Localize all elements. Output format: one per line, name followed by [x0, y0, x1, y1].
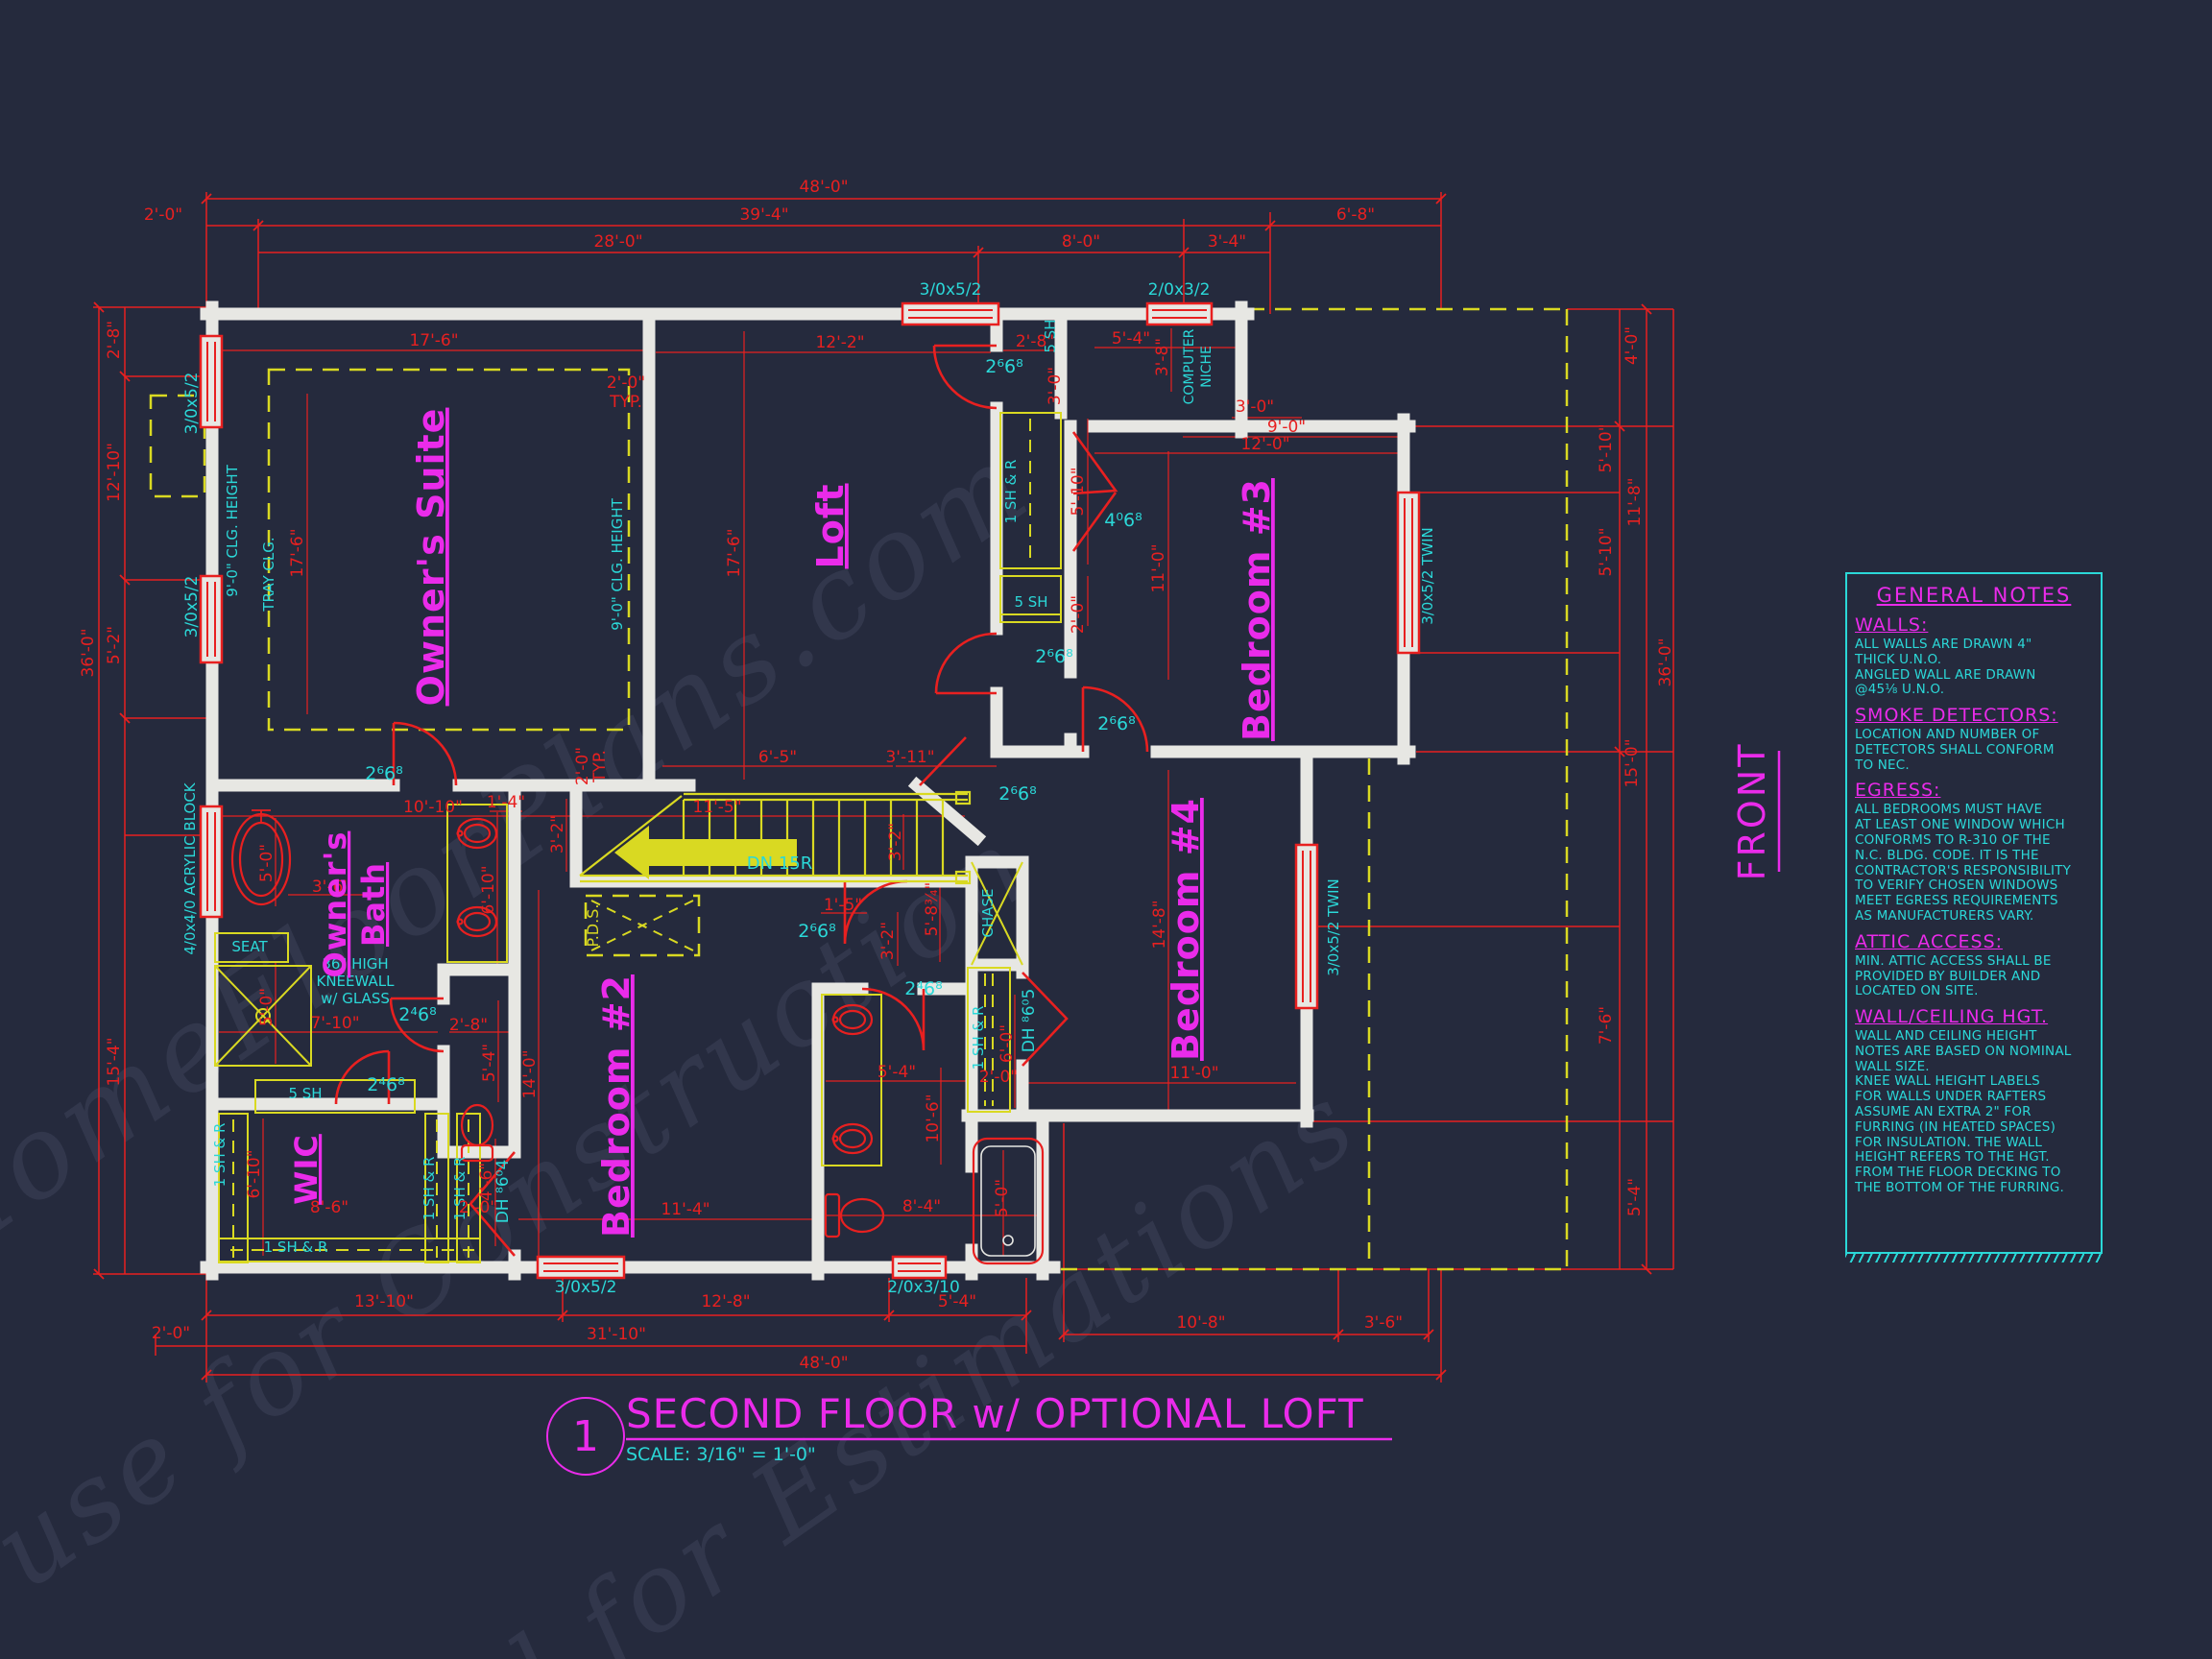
- annotation-label: 2'-0": [573, 747, 592, 785]
- annotation-label: 1 SH & R: [970, 1006, 987, 1070]
- annotation-label: w/ GLASS: [321, 990, 390, 1007]
- annotation-label: 1 SH & R: [211, 1123, 228, 1188]
- annotation-label: 2⁶6⁸: [798, 921, 835, 942]
- annotation-label: 3'-2": [878, 922, 898, 960]
- annotation-label: DN 15R: [747, 854, 812, 874]
- annotation-label: 3/0x5/2 TWIN: [1419, 527, 1436, 625]
- annotation-label: 5'-0": [257, 988, 276, 1026]
- door-loft-lower: [936, 634, 997, 693]
- annotation-label: 3/0x5/2: [182, 373, 202, 435]
- annotation-label: 2'-0": [979, 1068, 1018, 1087]
- annotation-label: 9'-0" CLG. HEIGHT: [609, 497, 626, 630]
- notes-section-wall-ceiling-hgt: WALL/CEILING HGT. WALL AND CEILING HEIGH…: [1855, 1006, 2093, 1196]
- cad-floorplan-sheet: { "title_block": { "number": "1", "title…: [0, 0, 2212, 1659]
- annotation-label: P.D.S.: [584, 904, 602, 948]
- annotation-label: 17'-6": [288, 528, 307, 577]
- annotation-label: 2⁴6⁸: [367, 1074, 404, 1095]
- annotation-label: 6'-0": [998, 1024, 1017, 1063]
- room-label: Owner's: [317, 831, 353, 978]
- annotation-label: COMPUTER: [1182, 328, 1197, 404]
- annotation-label: 3'-2": [886, 823, 905, 861]
- annotation-label: 5'-4": [878, 1063, 916, 1082]
- window-3052-top: [902, 303, 998, 325]
- room-label: Bath: [355, 862, 392, 947]
- notes-body: WALL AND CEILING HEIGHT NOTES ARE BASED …: [1855, 1029, 2093, 1196]
- notes-body: LOCATION AND NUMBER OF DETECTORS SHALL C…: [1855, 728, 2093, 773]
- annotation-label: 6'-5": [758, 748, 797, 767]
- notes-heading: EGRESS:: [1855, 780, 2093, 801]
- annotation-label: DH ⁸6⁰4: [493, 1160, 513, 1224]
- annotation-label: 3'-6": [1364, 1313, 1403, 1333]
- front-label-group: FRONT: [1731, 742, 1779, 881]
- notes-body: ALL BEDROOMS MUST HAVE AT LEAST ONE WIND…: [1855, 803, 2093, 924]
- annotation-label: SEAT: [231, 938, 268, 955]
- annotation-label: 10'-8": [1176, 1313, 1225, 1333]
- annotation-label: 5'-0": [993, 1179, 1012, 1217]
- annotation-label: 11'-0": [1169, 1064, 1218, 1083]
- room-label: Owner's Suite: [410, 408, 452, 707]
- annotation-label: 2⁶6⁸: [998, 783, 1036, 805]
- annotation-label: 8'-4": [902, 1197, 941, 1216]
- annotation-label: 5 SH: [288, 1085, 322, 1102]
- notes-body: MIN. ATTIC ACCESS SHALL BE PROVIDED BY B…: [1855, 954, 2093, 999]
- general-notes-panel: GENERAL NOTES WALLS: ALL WALLS ARE DRAWN…: [1845, 572, 2103, 1254]
- room-label: Bedroom #4: [1165, 798, 1207, 1061]
- window-20310-bottom: [893, 1257, 946, 1278]
- annotation-label: 39'-4": [739, 205, 788, 225]
- annotation-label: 2'-0": [1069, 595, 1088, 634]
- annotation-label: 11'-0": [1149, 543, 1168, 592]
- window-3052-twin-bed3: [1398, 493, 1419, 653]
- window-2032-top: [1147, 303, 1212, 325]
- annotation-label: 5'-10": [1597, 423, 1616, 472]
- notes-heading: WALLS:: [1855, 614, 2093, 636]
- annotation-label: 6'-10": [479, 865, 498, 914]
- annotation-label: 15'-0": [1623, 738, 1642, 787]
- annotation-label: 2⁴6⁸: [398, 1004, 436, 1025]
- room-label: Bedroom #3: [1236, 478, 1278, 741]
- annotation-label: 3'-11": [885, 748, 934, 767]
- annotation-label: 1 SH & R: [421, 1157, 438, 1221]
- annotation-label: 2'-0": [459, 1198, 497, 1217]
- notes-heading: ATTIC ACCESS:: [1855, 931, 2093, 952]
- annotation-label: 4⁰6⁸: [1104, 510, 1142, 531]
- annotation-label: 8'-0": [1062, 232, 1100, 252]
- drawing-title: SECOND FLOOR w/ OPTIONAL LOFT: [626, 1390, 1364, 1437]
- notes-heading: WALL/CEILING HGT.: [1855, 1006, 2093, 1027]
- annotation-label: 7'-6": [1597, 1006, 1616, 1045]
- notes-section-walls: WALLS: ALL WALLS ARE DRAWN 4" THICK U.N.…: [1855, 614, 2093, 698]
- annotation-label: 1 SH & R: [1002, 460, 1020, 524]
- annotation-label: 2'-8": [449, 1016, 488, 1035]
- annotation-label: 5'-0": [257, 844, 276, 882]
- annotation-label: 2⁴6⁸: [904, 978, 942, 999]
- annotation-label: 1'-4": [487, 793, 525, 812]
- notes-heading: SMOKE DETECTORS:: [1855, 705, 2093, 726]
- annotation-label: TYP.: [590, 750, 610, 783]
- annotation-label: 2/0x3/10: [887, 1278, 960, 1297]
- notes-title: GENERAL NOTES: [1855, 584, 2093, 607]
- annotation-label: 2⁶6⁸: [365, 763, 402, 784]
- annotation-label: 3'-0": [1046, 367, 1065, 405]
- annotation-label: TYP.: [609, 393, 642, 412]
- room-label: WIC: [288, 1134, 325, 1205]
- annotation-label: 9'-0": [1267, 418, 1306, 437]
- annotation-label: 11'-8": [1625, 477, 1645, 526]
- annotation-label: 10'-6": [924, 1094, 943, 1142]
- drawing-scale: SCALE: 3/16" = 1'-0": [626, 1444, 816, 1465]
- annotation-label: 2/0x3/2: [1148, 280, 1211, 300]
- annotation-label: 12'-2": [815, 333, 864, 352]
- annotation-label: 12'-8": [701, 1292, 750, 1311]
- annotation-label: 48'-0": [799, 1354, 848, 1373]
- front-label: FRONT: [1731, 742, 1773, 881]
- door-owners-suite: [394, 723, 456, 785]
- annotation-label: 5 SH: [1014, 593, 1047, 611]
- window-acrylic-block-left: [201, 806, 222, 917]
- annotation-label: 14'-0": [520, 1049, 540, 1098]
- annotation-label: TRAY CLG.: [260, 537, 277, 612]
- annotation-label: 17'-6": [725, 528, 744, 577]
- window-3052-left-2: [201, 576, 222, 662]
- annotation-label: 28'-0": [593, 232, 642, 252]
- annotation-label: 48'-0": [799, 178, 848, 197]
- annotation-label: 3'-8": [1153, 338, 1172, 376]
- annotation-label: 5'-10": [1069, 467, 1088, 516]
- annotation-label: 1 SH & R: [264, 1238, 328, 1256]
- annotation-label: 5'-10": [1597, 527, 1616, 576]
- notes-section-egress: EGRESS: ALL BEDROOMS MUST HAVE AT LEAST …: [1855, 780, 2093, 924]
- annotation-label: 12'-10": [105, 443, 124, 502]
- annotation-label: 13'-10": [354, 1292, 414, 1311]
- annotation-label: 2'-0": [607, 373, 645, 393]
- annotation-label: 5'-4": [1112, 329, 1150, 349]
- annotation-label: 5'-4": [1625, 1178, 1645, 1216]
- annotation-label: 10'-10": [403, 798, 463, 817]
- window-3052-twin-bed4: [1296, 845, 1317, 1008]
- room-label: Loft: [809, 483, 852, 568]
- annotation-label: 6'-10": [245, 1149, 264, 1198]
- annotation-label: 15'-4": [105, 1037, 124, 1086]
- annotation-label: 1'-5": [824, 896, 862, 915]
- window-3052-bottom: [538, 1257, 624, 1278]
- annotation-label: 2⁶6⁸: [1097, 713, 1135, 734]
- annotation-label: 2⁶6⁸: [1035, 646, 1072, 667]
- annotation-label: 5'-8¾": [923, 882, 942, 937]
- sink: [833, 1124, 873, 1153]
- annotation-label: 3'-2": [548, 815, 567, 854]
- annotation-label: 5 SH: [1042, 319, 1059, 352]
- pds-box: [586, 896, 699, 955]
- notes-section-attic-access: ATTIC ACCESS: MIN. ATTIC ACCESS SHALL BE…: [1855, 931, 2093, 999]
- room-label: Bedroom #2: [595, 974, 637, 1238]
- notes-body: ALL WALLS ARE DRAWN 4" THICK U.N.O. ANGL…: [1855, 637, 2093, 698]
- annotation-label: 3'-4": [1208, 232, 1246, 252]
- annotation-label: 31'-10": [587, 1325, 646, 1344]
- annotation-label: 2'-8": [105, 321, 124, 359]
- annotation-label: 17'-6": [409, 331, 458, 350]
- annotation-label: NICHE: [1199, 346, 1214, 388]
- annotation-label: 7'-10": [310, 1014, 359, 1033]
- annotation-label: 4/0x4/0 ACRYLIC BLOCK: [181, 781, 199, 954]
- annotation-label: 9'-0" CLG. HEIGHT: [224, 464, 241, 596]
- annotation-label: CHASE: [979, 888, 997, 937]
- annotation-label: 5'-2": [105, 626, 124, 664]
- notes-section-smoke-detectors: SMOKE DETECTORS: LOCATION AND NUMBER OF …: [1855, 705, 2093, 773]
- annotation-label: 4'-0": [1623, 326, 1642, 365]
- annotation-label: 36'-0": [1656, 637, 1675, 686]
- title-block: 1 SECOND FLOOR w/ OPTIONAL LOFT SCALE: 3…: [547, 1390, 1392, 1475]
- annotation-label: 11'-5": [692, 798, 741, 817]
- annotation-label: 3/0x5/2: [182, 576, 202, 638]
- annotation-label: DH ⁸6⁰5: [1020, 989, 1039, 1053]
- annotation-label: 12'-0": [1240, 435, 1289, 454]
- annotation-label: 2⁶6⁸: [985, 356, 1022, 377]
- annotation-label: 5'-4": [480, 1044, 499, 1082]
- annotation-label: 2'-0": [144, 205, 182, 225]
- annotation-label: 11'-4": [661, 1200, 709, 1219]
- sheet-number: 1: [572, 1412, 599, 1461]
- annotation-label: 3/0x5/2: [920, 280, 982, 300]
- annotation-label: 3/0x5/2 TWIN: [1325, 878, 1342, 976]
- annotation-label: 36'-0": [79, 628, 98, 677]
- annotation-label: 2'-0": [152, 1324, 190, 1343]
- window-3052-left-1: [201, 336, 222, 427]
- annotation-label: 6'-8": [1336, 205, 1375, 225]
- annotation-label: 3/0x5/2: [555, 1278, 617, 1297]
- annotation-label: 3'-0": [1236, 397, 1274, 417]
